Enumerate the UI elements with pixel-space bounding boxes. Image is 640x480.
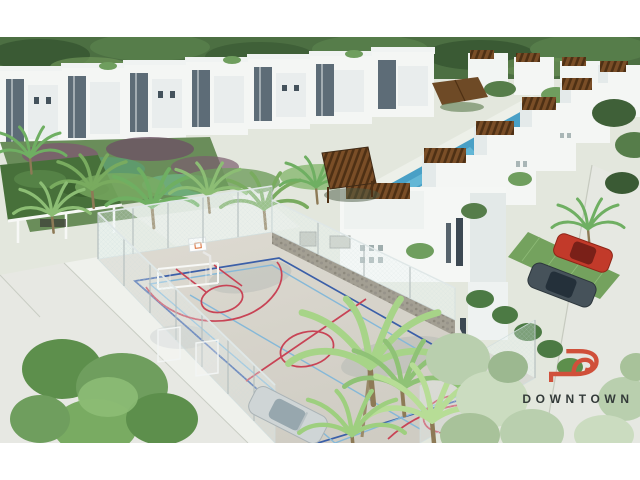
render-image: DOWNTOWN (0, 0, 640, 480)
brand-wordmark: DOWNTOWN (518, 392, 634, 406)
downtown-logo: DOWNTOWN (518, 349, 634, 406)
pool-pavilion (432, 77, 488, 112)
letterbox-bottom (0, 443, 640, 480)
letterbox-top (0, 0, 640, 37)
downtown-d-arrow-icon (549, 349, 603, 391)
